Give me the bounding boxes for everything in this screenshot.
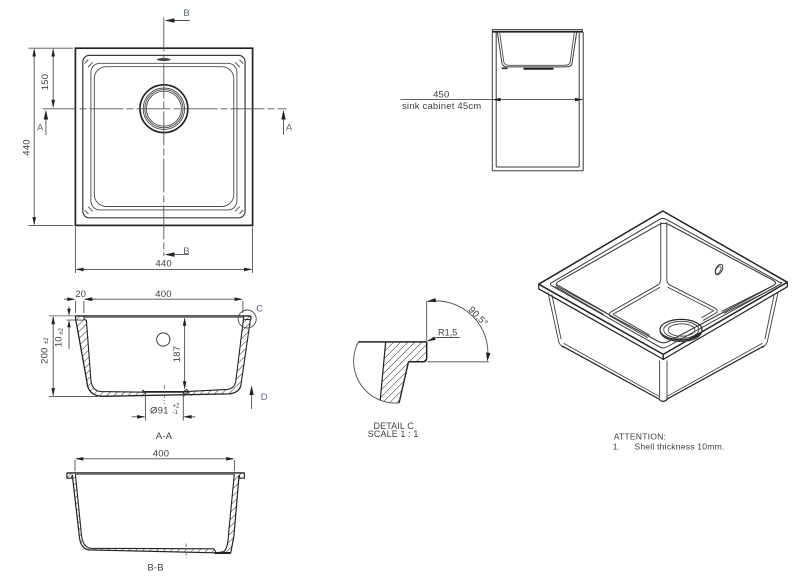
svg-text:A-A: A-A	[156, 431, 173, 442]
svg-text:R1,5: R1,5	[438, 328, 457, 338]
svg-text:Shell thickness 10mm.: Shell thickness 10mm.	[634, 442, 724, 452]
svg-text:±2: ±2	[59, 327, 65, 334]
svg-text:10: 10	[54, 336, 65, 347]
svg-text:440: 440	[22, 139, 33, 155]
svg-text:150: 150	[40, 74, 51, 90]
svg-text:B-B: B-B	[147, 562, 163, 573]
svg-text:D: D	[261, 392, 268, 403]
svg-text:+2: +2	[173, 404, 181, 410]
svg-text:SCALE 1 : 1: SCALE 1 : 1	[368, 429, 419, 439]
svg-text:200: 200	[39, 347, 50, 363]
svg-text:1.: 1.	[613, 442, 621, 452]
svg-text:450: 450	[433, 89, 449, 100]
svg-text:440: 440	[155, 259, 171, 270]
svg-text:A: A	[286, 123, 293, 134]
svg-text:sink cabinet 45cm: sink cabinet 45cm	[402, 101, 481, 112]
svg-text:187: 187	[172, 346, 183, 362]
svg-text:Ø91: Ø91	[150, 405, 169, 416]
svg-text:C: C	[256, 304, 263, 315]
svg-text:20: 20	[75, 289, 86, 300]
svg-text:±2: ±2	[44, 337, 50, 344]
svg-text:ATTENTION:: ATTENTION:	[614, 432, 666, 442]
svg-text:-1: -1	[173, 410, 179, 416]
svg-text:B: B	[183, 8, 190, 19]
svg-text:400: 400	[153, 448, 169, 459]
svg-text:400: 400	[155, 289, 171, 300]
svg-text:A: A	[37, 123, 44, 134]
svg-text:B: B	[183, 246, 190, 257]
